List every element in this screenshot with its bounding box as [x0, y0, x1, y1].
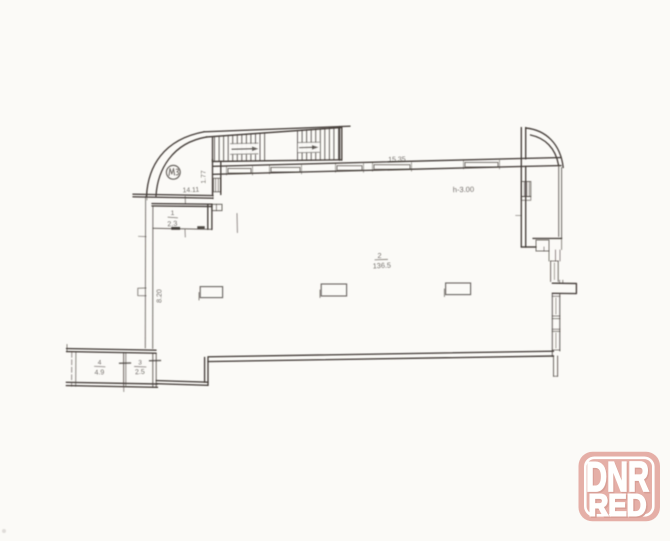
svg-text:8.20: 8.20 [157, 289, 164, 303]
svg-text:1.77: 1.77 [201, 170, 208, 183]
svg-text:15.35: 15.35 [388, 156, 406, 163]
svg-text:2.3: 2.3 [167, 219, 178, 229]
svg-text:h-3.00: h-3.00 [453, 185, 475, 195]
svg-text:RED: RED [589, 489, 647, 523]
svg-text:4.9: 4.9 [94, 369, 104, 377]
svg-text:136.5: 136.5 [373, 261, 392, 271]
svg-text:2: 2 [377, 251, 381, 260]
svg-text:3: 3 [138, 360, 142, 367]
svg-text:2.5: 2.5 [135, 369, 145, 377]
svg-text:1: 1 [171, 210, 175, 217]
svg-text:14.11: 14.11 [182, 187, 199, 195]
svg-text:4: 4 [98, 360, 102, 367]
